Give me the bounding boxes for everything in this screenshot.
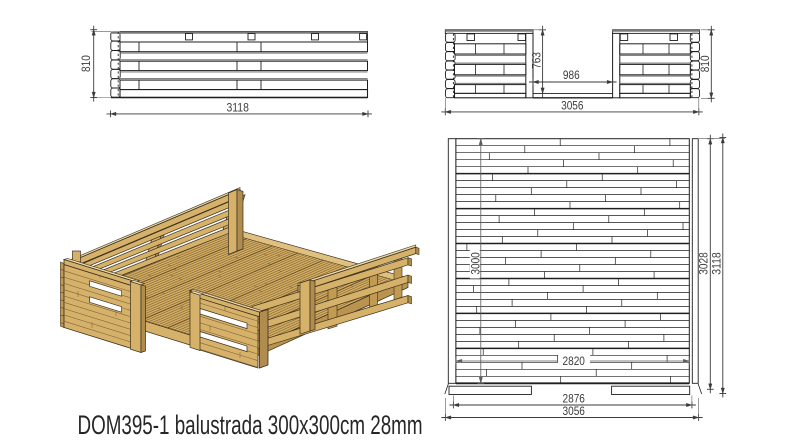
svg-text:3000: 3000 bbox=[469, 252, 483, 275]
svg-text:3118: 3118 bbox=[227, 100, 250, 114]
svg-text:810: 810 bbox=[79, 55, 93, 72]
svg-text:3118: 3118 bbox=[710, 252, 724, 275]
svg-text:3028: 3028 bbox=[696, 252, 710, 275]
svg-text:986: 986 bbox=[563, 68, 580, 82]
svg-text:810: 810 bbox=[698, 55, 712, 72]
svg-text:DOM395-1 balustrada 300x300cm: DOM395-1 balustrada 300x300cm 28mm bbox=[78, 410, 423, 440]
svg-text:3056: 3056 bbox=[561, 98, 584, 112]
svg-text:763: 763 bbox=[529, 52, 543, 69]
svg-text:2820: 2820 bbox=[563, 354, 586, 368]
svg-text:3056: 3056 bbox=[563, 404, 586, 418]
